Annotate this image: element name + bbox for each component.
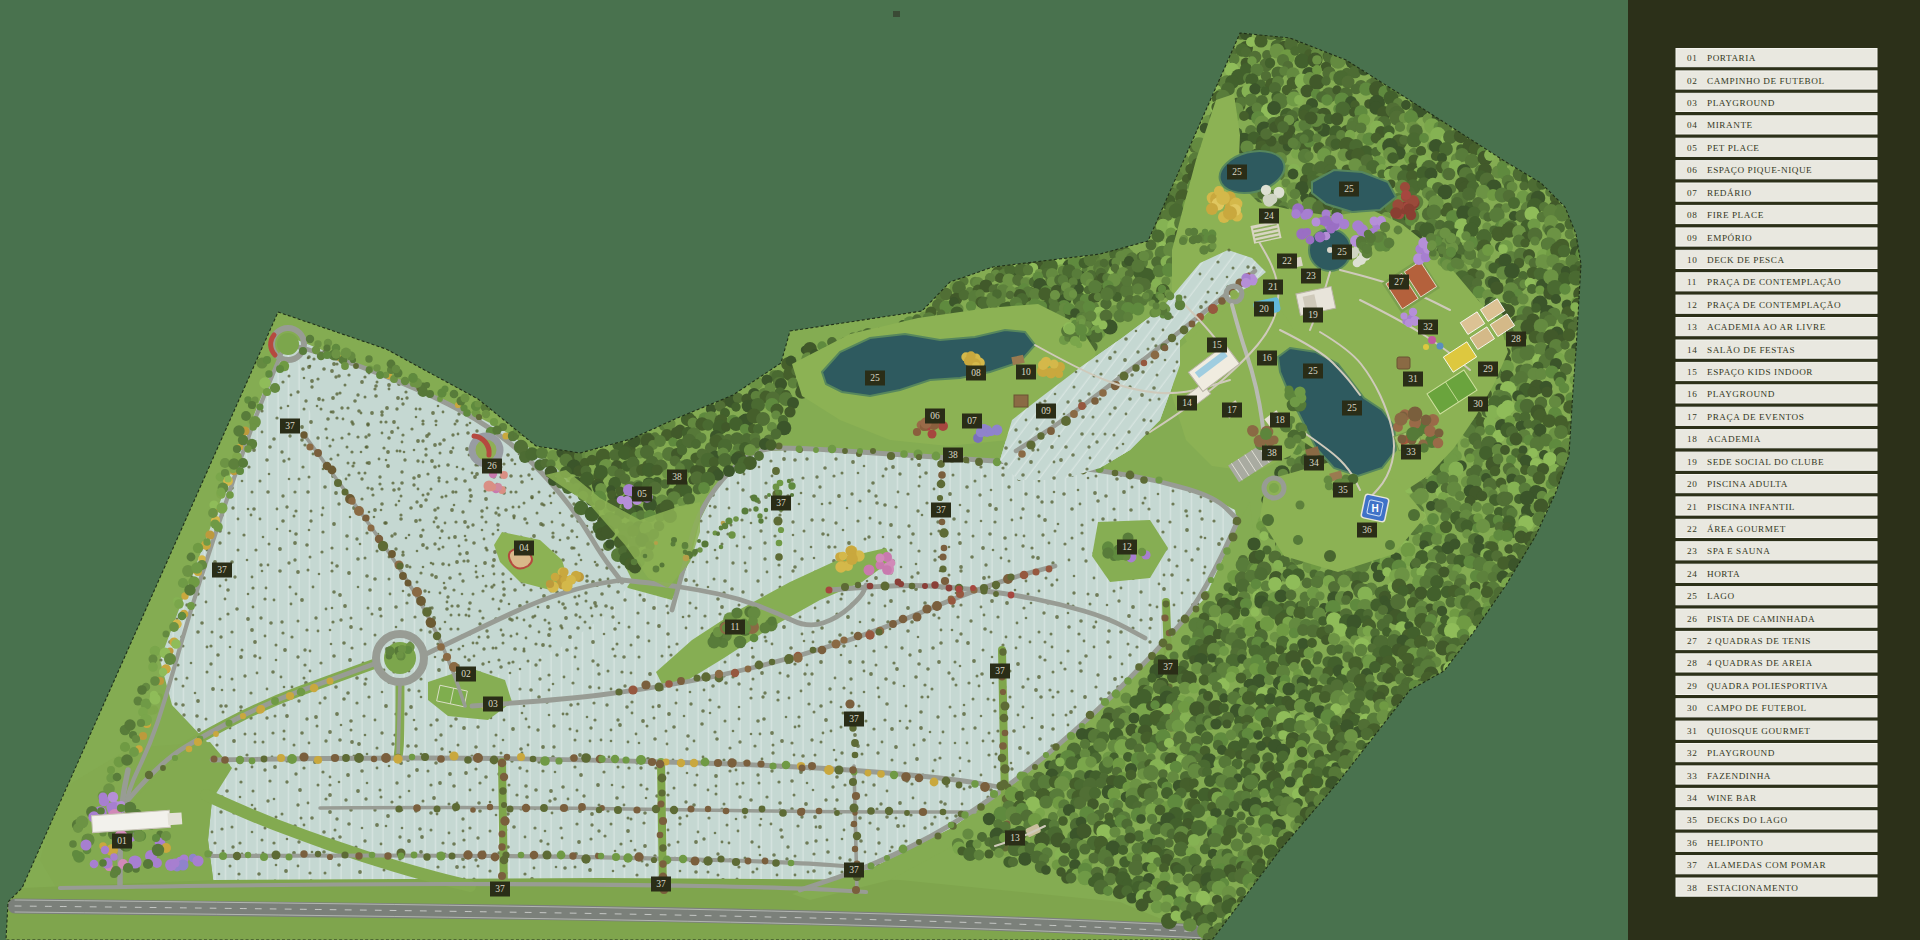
svg-text:07: 07 <box>967 416 977 426</box>
svg-text:16: 16 <box>1687 389 1697 399</box>
svg-text:27: 27 <box>1687 636 1697 646</box>
svg-text:25: 25 <box>1337 247 1347 257</box>
svg-text:03: 03 <box>488 699 498 709</box>
svg-text:PORTARIA: PORTARIA <box>1707 53 1756 63</box>
svg-text:H: H <box>1371 503 1378 514</box>
svg-text:24: 24 <box>1264 211 1274 221</box>
svg-text:09: 09 <box>1041 406 1051 416</box>
svg-text:16: 16 <box>1262 353 1272 363</box>
svg-text:19: 19 <box>1687 457 1697 467</box>
svg-text:14: 14 <box>1182 398 1192 408</box>
svg-text:25: 25 <box>1308 366 1318 376</box>
svg-text:37: 37 <box>936 505 946 515</box>
svg-text:28: 28 <box>1511 334 1521 344</box>
svg-text:20: 20 <box>1687 479 1697 489</box>
svg-text:11: 11 <box>730 622 739 632</box>
svg-text:25: 25 <box>1347 403 1357 413</box>
svg-text:31: 31 <box>1408 374 1418 384</box>
svg-text:37: 37 <box>776 498 786 508</box>
svg-text:06: 06 <box>930 411 940 421</box>
svg-text:QUIOSQUE GOURMET: QUIOSQUE GOURMET <box>1707 726 1810 736</box>
svg-text:10: 10 <box>1687 255 1697 265</box>
svg-text:37: 37 <box>217 565 227 575</box>
svg-text:37: 37 <box>1163 662 1173 672</box>
svg-text:06: 06 <box>1687 165 1697 175</box>
svg-text:35: 35 <box>1687 815 1697 825</box>
svg-text:WINE BAR: WINE BAR <box>1707 793 1757 803</box>
svg-text:LAGO: LAGO <box>1707 591 1735 601</box>
svg-text:20: 20 <box>1259 304 1269 314</box>
svg-text:REDÁRIO: REDÁRIO <box>1707 188 1752 198</box>
svg-text:02: 02 <box>1687 76 1697 86</box>
svg-text:FAZENDINHA: FAZENDINHA <box>1707 771 1771 781</box>
svg-text:30: 30 <box>1473 399 1483 409</box>
svg-text:15: 15 <box>1212 340 1222 350</box>
svg-text:11: 11 <box>1687 277 1697 287</box>
svg-text:21: 21 <box>1687 502 1697 512</box>
svg-text:21: 21 <box>1268 282 1278 292</box>
svg-text:32: 32 <box>1423 322 1433 332</box>
svg-text:ESTACIONAMENTO: ESTACIONAMENTO <box>1707 883 1799 893</box>
svg-text:12: 12 <box>1687 300 1697 310</box>
svg-text:23: 23 <box>1306 271 1316 281</box>
svg-text:PET PLACE: PET PLACE <box>1707 143 1760 153</box>
svg-text:01: 01 <box>117 836 127 846</box>
svg-text:25: 25 <box>1232 167 1242 177</box>
svg-text:30: 30 <box>1687 703 1697 713</box>
svg-text:ALAMEDAS COM POMAR: ALAMEDAS COM POMAR <box>1707 860 1826 870</box>
svg-text:37: 37 <box>656 879 666 889</box>
svg-text:ACADEMIA: ACADEMIA <box>1707 434 1761 444</box>
svg-text:18: 18 <box>1687 434 1697 444</box>
svg-text:QUADRA POLIESPORTIVA: QUADRA POLIESPORTIVA <box>1707 681 1828 691</box>
svg-text:26: 26 <box>487 461 497 471</box>
svg-text:EMPÓRIO: EMPÓRIO <box>1707 233 1752 243</box>
svg-text:37: 37 <box>495 884 505 894</box>
svg-text:DECKS DO LAGO: DECKS DO LAGO <box>1707 815 1788 825</box>
svg-text:37: 37 <box>849 865 859 875</box>
svg-text:19: 19 <box>1308 310 1318 320</box>
svg-text:25: 25 <box>1687 591 1697 601</box>
svg-text:HELIPONTO: HELIPONTO <box>1707 838 1763 848</box>
svg-text:38: 38 <box>672 472 682 482</box>
svg-text:32: 32 <box>1687 748 1697 758</box>
svg-text:04: 04 <box>1687 120 1697 130</box>
svg-text:ACADEMIA AO AR LIVRE: ACADEMIA AO AR LIVRE <box>1707 322 1826 332</box>
svg-text:PLAYGROUND: PLAYGROUND <box>1707 748 1775 758</box>
svg-text:23: 23 <box>1687 546 1697 556</box>
svg-text:ÁREA GOURMET: ÁREA GOURMET <box>1707 524 1786 534</box>
svg-text:22: 22 <box>1282 256 1292 266</box>
svg-text:22: 22 <box>1687 524 1697 534</box>
svg-text:PLAYGROUND: PLAYGROUND <box>1707 98 1775 108</box>
svg-text:04: 04 <box>519 543 529 553</box>
svg-text:37: 37 <box>1687 860 1697 870</box>
svg-text:37: 37 <box>849 714 859 724</box>
svg-text:FIRE PLACE: FIRE PLACE <box>1707 210 1764 220</box>
svg-text:25: 25 <box>1344 184 1354 194</box>
svg-text:08: 08 <box>971 368 981 378</box>
svg-text:17: 17 <box>1227 405 1237 415</box>
svg-text:10: 10 <box>1021 367 1031 377</box>
svg-text:18: 18 <box>1275 415 1285 425</box>
svg-text:14: 14 <box>1687 345 1697 355</box>
svg-text:38: 38 <box>948 450 958 460</box>
svg-text:CAMPO DE FUTEBOL: CAMPO DE FUTEBOL <box>1707 703 1807 713</box>
svg-text:13: 13 <box>1687 322 1697 332</box>
svg-text:13: 13 <box>1010 833 1020 843</box>
svg-text:38: 38 <box>1687 883 1697 893</box>
svg-text:ESPAÇO PIQUE-NIQUE: ESPAÇO PIQUE-NIQUE <box>1707 165 1812 175</box>
svg-text:PISTA DE CAMINHADA: PISTA DE CAMINHADA <box>1707 614 1815 624</box>
svg-text:CAMPINHO DE FUTEBOL: CAMPINHO DE FUTEBOL <box>1707 76 1825 86</box>
svg-text:24: 24 <box>1687 569 1697 579</box>
svg-text:HORTA: HORTA <box>1707 569 1740 579</box>
svg-text:ESPAÇO KIDS INDOOR: ESPAÇO KIDS INDOOR <box>1707 367 1813 377</box>
svg-text:08: 08 <box>1687 210 1697 220</box>
svg-text:33: 33 <box>1406 447 1416 457</box>
svg-text:35: 35 <box>1338 485 1348 495</box>
svg-text:02: 02 <box>461 669 471 679</box>
svg-text:PRAÇA DE CONTEMPLAÇÃO: PRAÇA DE CONTEMPLAÇÃO <box>1707 277 1841 287</box>
svg-text:09: 09 <box>1687 233 1697 243</box>
svg-text:01: 01 <box>1687 53 1697 63</box>
svg-text:28: 28 <box>1687 658 1697 668</box>
svg-text:03: 03 <box>1687 98 1697 108</box>
svg-text:MIRANTE: MIRANTE <box>1707 120 1753 130</box>
svg-text:36: 36 <box>1687 838 1697 848</box>
svg-text:34: 34 <box>1687 793 1697 803</box>
svg-text:37: 37 <box>995 666 1005 676</box>
svg-text:PRAÇA DE EVENTOS: PRAÇA DE EVENTOS <box>1707 412 1804 422</box>
svg-text:17: 17 <box>1687 412 1697 422</box>
svg-text:PLAYGROUND: PLAYGROUND <box>1707 389 1775 399</box>
svg-text:05: 05 <box>637 489 647 499</box>
svg-text:34: 34 <box>1309 458 1319 468</box>
svg-text:29: 29 <box>1687 681 1697 691</box>
svg-text:31: 31 <box>1687 726 1697 736</box>
svg-text:38: 38 <box>1267 448 1277 458</box>
svg-text:SEDE SOCIAL DO CLUBE: SEDE SOCIAL DO CLUBE <box>1707 457 1824 467</box>
svg-text:36: 36 <box>1362 525 1372 535</box>
svg-text:15: 15 <box>1687 367 1697 377</box>
svg-text:05: 05 <box>1687 143 1697 153</box>
svg-text:PISCINA ADULTA: PISCINA ADULTA <box>1707 479 1788 489</box>
svg-text:25: 25 <box>870 373 880 383</box>
svg-text:07: 07 <box>1687 188 1697 198</box>
svg-text:SPA E SAUNA: SPA E SAUNA <box>1707 546 1770 556</box>
svg-text:4 QUADRAS DE AREIA: 4 QUADRAS DE AREIA <box>1707 658 1813 668</box>
svg-text:33: 33 <box>1687 771 1697 781</box>
svg-text:29: 29 <box>1483 364 1493 374</box>
svg-text:SALÃO DE FESTAS: SALÃO DE FESTAS <box>1707 345 1795 355</box>
svg-text:12: 12 <box>1122 542 1132 552</box>
svg-text:26: 26 <box>1687 614 1697 624</box>
svg-text:27: 27 <box>1394 277 1404 287</box>
svg-text:PISCINA INFANTIL: PISCINA INFANTIL <box>1707 502 1795 512</box>
svg-text:2 QUADRAS DE TENIS: 2 QUADRAS DE TENIS <box>1707 636 1811 646</box>
svg-text:PRAÇA DE CONTEMPLAÇÃO: PRAÇA DE CONTEMPLAÇÃO <box>1707 300 1841 310</box>
svg-text:DECK DE PESCA: DECK DE PESCA <box>1707 255 1785 265</box>
svg-text:37: 37 <box>285 421 295 431</box>
